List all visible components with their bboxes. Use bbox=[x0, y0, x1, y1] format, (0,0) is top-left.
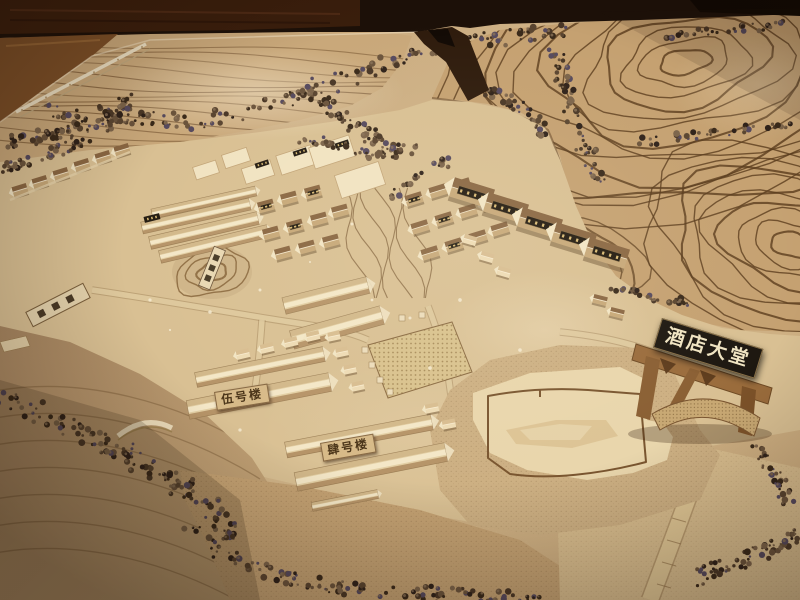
model-terrain-artwork bbox=[0, 0, 800, 600]
architectural-model-photo: 伍号楼 肆号楼 酒店大堂 bbox=[0, 0, 800, 600]
